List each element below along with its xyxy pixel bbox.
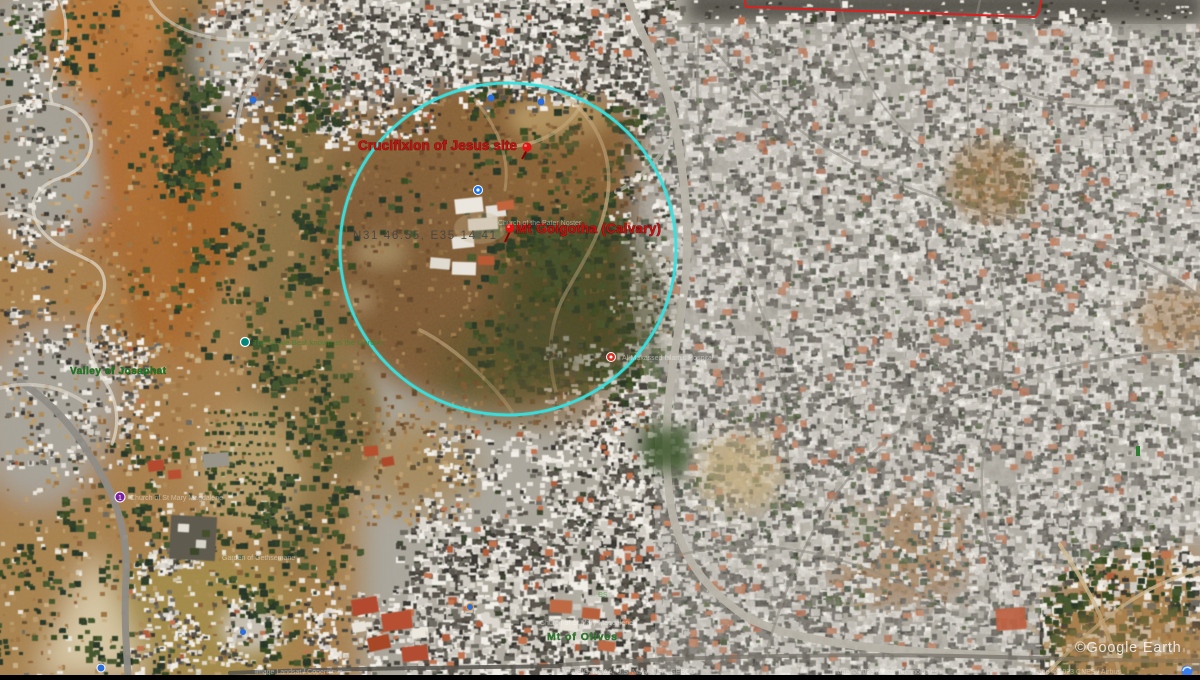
- svg-text:©Google Earth: ©Google Earth: [1075, 640, 1182, 656]
- svg-text:Valley of Josaphat: Valley of Josaphat: [70, 366, 167, 377]
- svg-text:Crucifixion of Jesus site: Crucifixion of Jesus site: [358, 138, 517, 153]
- svg-text:Church of St Mary Magdalene: Church of St Mary Magdalene: [130, 495, 223, 502]
- svg-text:es: es: [598, 589, 608, 599]
- svg-text:Church of the Pater Noster: Church of the Pater Noster: [498, 220, 582, 227]
- svg-text:Data SIO, NOAA, U.S. Navy, NGA: Data SIO, NOAA, U.S. Navy, NGA, GEBCO: [560, 669, 696, 675]
- svg-text:1: 1: [118, 495, 122, 502]
- svg-text:Garden of Gethsemane: Garden of Gethsemane: [222, 555, 295, 562]
- svg-text:Al-Makassed Islamic Hospital: Al-Makassed Islamic Hospital: [622, 355, 714, 362]
- svg-text:Image © 2023 CNES / Airbus: Image © 2023 CNES / Airbus: [1030, 668, 1121, 675]
- svg-text:The Grove Best known as the Ga: The Grove Best known as the Garden: [253, 338, 383, 347]
- svg-text:Mt of Olives: Mt of Olives: [547, 631, 617, 643]
- svg-text:Church of St Mary Magdalene: Church of St Mary Magdalene: [540, 620, 633, 627]
- svg-text:Image Landsat / Copernicus: Image Landsat / Copernicus: [255, 669, 343, 675]
- svg-text:Image © 2023 Maxar Technologie: Image © 2023 Maxar Technologies: [830, 668, 939, 675]
